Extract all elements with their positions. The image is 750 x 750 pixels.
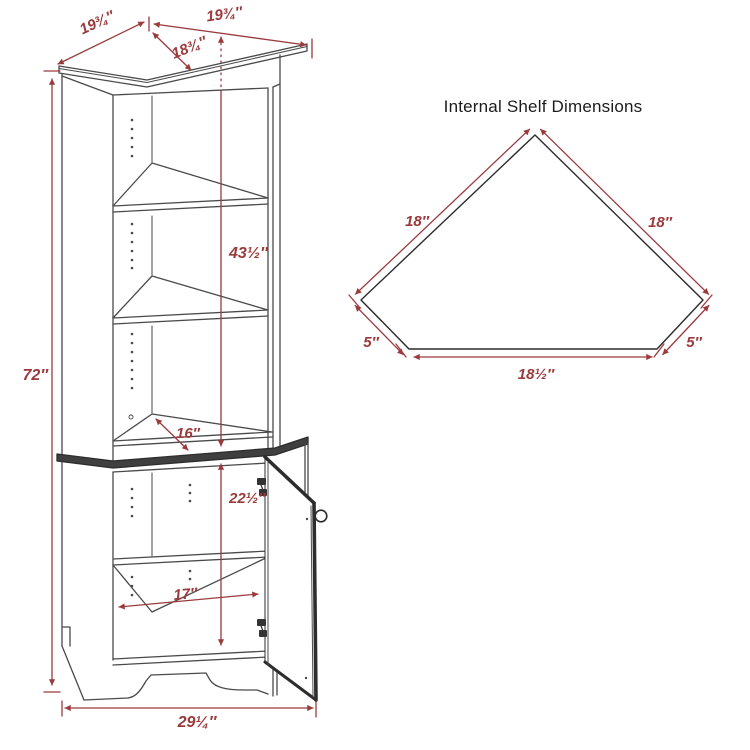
label-shelf-front-edge: 18½″ <box>518 366 555 383</box>
cabinet-dimension-labels: 19¾″ 19¾″ 18¾″ 72″ 43½″ 16″ 22½″ 17″ 29¼… <box>23 3 270 731</box>
shelf-pin-holes-lower <box>131 484 192 597</box>
label-top-diagonal: 18¾″ <box>169 33 210 63</box>
dim-shelf-right-edge <box>541 129 709 294</box>
label-shelf-right-edge: 18″ <box>648 214 673 231</box>
shelf-1 <box>113 163 268 212</box>
label-upper-interior-height: 43½″ <box>228 245 269 262</box>
shelf-pin-holes-upper <box>129 119 133 419</box>
label-lower-shelf-width: 17″ <box>173 585 199 604</box>
lower-shelf <box>113 551 268 612</box>
label-shelf-left-edge: 18″ <box>405 213 430 230</box>
shelf-outline <box>361 135 703 349</box>
upper-shelves <box>113 163 272 446</box>
cabinet-door-open <box>257 457 327 700</box>
corner-cabinet-spec-sheet: 19¾″ 19¾″ 18¾″ 72″ 43½″ 16″ 22½″ 17″ 29¼… <box>0 0 750 750</box>
shelf-dimensions <box>349 129 712 357</box>
label-base-width: 29¼″ <box>177 714 218 731</box>
label-lower-interior-height: 22½″ <box>228 490 266 507</box>
shelf-2 <box>113 276 268 324</box>
label-shelf-depth: 16″ <box>176 425 201 442</box>
label-shelf-left-corner: 5″ <box>363 334 379 351</box>
label-top-right-edge: 19¾″ <box>205 3 244 25</box>
door-knob <box>315 510 327 522</box>
label-total-height: 72″ <box>23 367 50 384</box>
label-shelf-right-corner: 5″ <box>686 334 702 351</box>
dim-shelf-left-edge <box>356 129 530 294</box>
diagram-canvas: 19¾″ 19¾″ 18¾″ 72″ 43½″ 16″ 22½″ 17″ 29¼… <box>0 0 750 750</box>
shelf-diagram-title: Internal Shelf Dimensions <box>444 97 643 116</box>
cabinet-body <box>62 55 280 646</box>
label-top-left-edge: 19¾″ <box>77 7 118 38</box>
